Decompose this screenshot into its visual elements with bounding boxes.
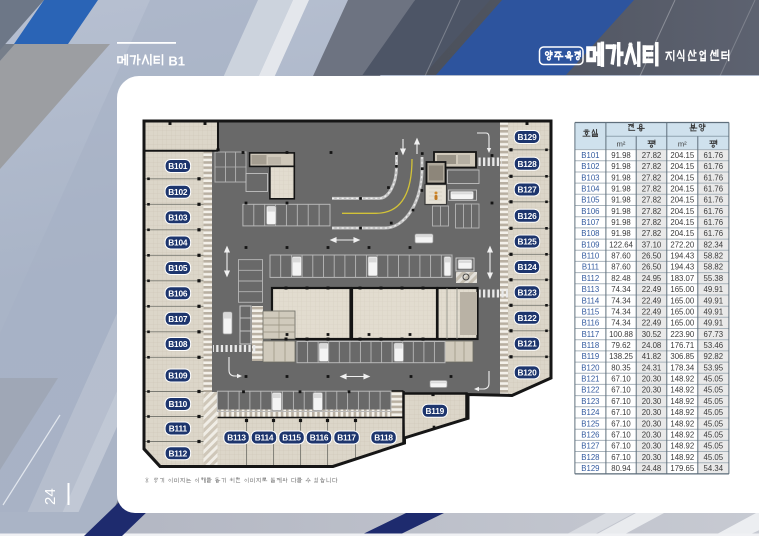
svg-text:B111: B111: [169, 424, 188, 434]
svg-text:B116: B116: [310, 433, 329, 443]
svg-text:91.98: 91.98: [611, 184, 631, 193]
svg-text:67.10: 67.10: [611, 397, 631, 406]
svg-text:26.50: 26.50: [642, 252, 662, 261]
svg-text:26.50: 26.50: [642, 263, 662, 272]
svg-text:20.30: 20.30: [642, 386, 662, 395]
svg-text:B1: B1: [168, 53, 185, 68]
svg-text:204.15: 204.15: [670, 184, 695, 193]
svg-text:B108: B108: [581, 229, 599, 238]
svg-text:m²: m²: [617, 140, 626, 149]
svg-text:148.92: 148.92: [670, 408, 694, 417]
svg-text:B128: B128: [581, 453, 599, 462]
svg-text:179.65: 179.65: [670, 464, 695, 473]
svg-text:148.92: 148.92: [670, 453, 694, 462]
svg-text:67.10: 67.10: [611, 419, 631, 428]
svg-text:80.35: 80.35: [611, 363, 631, 372]
svg-text:45.05: 45.05: [704, 386, 724, 395]
svg-text:176.71: 176.71: [670, 341, 694, 350]
svg-text:B112: B112: [169, 448, 188, 458]
svg-text:61.76: 61.76: [704, 196, 724, 205]
svg-text:B106: B106: [168, 288, 188, 298]
svg-text:27.82: 27.82: [642, 173, 662, 182]
svg-text:67.10: 67.10: [611, 453, 631, 462]
svg-text:148.92: 148.92: [670, 386, 694, 395]
svg-text:67.10: 67.10: [611, 431, 631, 440]
svg-text:49.91: 49.91: [704, 285, 724, 294]
svg-text:100.88: 100.88: [609, 330, 633, 339]
svg-text:194.43: 194.43: [670, 263, 694, 272]
svg-text:B106: B106: [581, 207, 599, 216]
svg-text:B121: B121: [517, 339, 537, 349]
svg-text:B119: B119: [582, 352, 600, 361]
svg-text:306.85: 306.85: [670, 352, 695, 361]
svg-text:148.92: 148.92: [670, 419, 694, 428]
svg-text:79.62: 79.62: [611, 341, 631, 350]
svg-text:178.34: 178.34: [670, 363, 695, 372]
svg-text:27.82: 27.82: [642, 151, 662, 160]
svg-text:204.15: 204.15: [670, 207, 695, 216]
svg-text:49.91: 49.91: [704, 319, 724, 328]
svg-text:B120: B120: [581, 363, 600, 372]
svg-text:91.98: 91.98: [611, 196, 631, 205]
svg-text:58.82: 58.82: [704, 263, 724, 272]
svg-text:B129: B129: [581, 464, 599, 473]
svg-text:B101: B101: [581, 151, 599, 160]
svg-text:87.60: 87.60: [611, 263, 631, 272]
svg-text:B118: B118: [374, 433, 393, 443]
svg-text:61.76: 61.76: [704, 207, 724, 216]
svg-text:138.25: 138.25: [609, 352, 634, 361]
svg-text:B124: B124: [581, 408, 600, 417]
svg-text:B103: B103: [168, 212, 188, 222]
svg-text:61.76: 61.76: [704, 151, 724, 160]
svg-text:82.48: 82.48: [611, 274, 631, 283]
svg-text:91.98: 91.98: [611, 173, 631, 182]
svg-text:204.15: 204.15: [670, 229, 695, 238]
svg-text:272.20: 272.20: [670, 240, 695, 249]
svg-text:54.34: 54.34: [704, 464, 724, 473]
svg-text:183.07: 183.07: [670, 274, 694, 283]
svg-text:B109: B109: [581, 240, 599, 249]
svg-text:53.46: 53.46: [704, 341, 724, 350]
svg-text:204.15: 204.15: [670, 162, 695, 171]
svg-text:53.95: 53.95: [704, 363, 724, 372]
svg-text:B110: B110: [582, 252, 600, 261]
svg-text:74.34: 74.34: [611, 296, 631, 305]
svg-text:67.73: 67.73: [704, 330, 724, 339]
svg-text:41.82: 41.82: [642, 352, 662, 361]
svg-text:B107: B107: [581, 218, 599, 227]
svg-text:B115: B115: [282, 433, 301, 443]
svg-text:165.00: 165.00: [670, 296, 695, 305]
svg-text:165.00: 165.00: [670, 319, 695, 328]
svg-text:22.49: 22.49: [642, 285, 662, 294]
svg-text:20.30: 20.30: [642, 442, 662, 451]
svg-text:B113: B113: [227, 433, 246, 443]
svg-text:B112: B112: [582, 274, 600, 283]
svg-text:165.00: 165.00: [670, 285, 695, 294]
svg-text:27.82: 27.82: [642, 218, 662, 227]
svg-text:B101: B101: [168, 161, 188, 171]
svg-text:194.43: 194.43: [670, 252, 694, 261]
svg-text:148.92: 148.92: [670, 442, 694, 451]
svg-text:45.05: 45.05: [704, 453, 724, 462]
svg-text:45.05: 45.05: [704, 419, 724, 428]
svg-text:45.05: 45.05: [704, 397, 724, 406]
svg-text:m²: m²: [678, 140, 687, 149]
svg-text:91.98: 91.98: [611, 218, 631, 227]
svg-text:B117: B117: [337, 433, 356, 443]
svg-text:61.76: 61.76: [704, 229, 724, 238]
svg-text:204.15: 204.15: [670, 151, 695, 160]
svg-text:49.91: 49.91: [704, 307, 724, 316]
svg-text:B125: B125: [581, 419, 600, 428]
svg-text:B126: B126: [517, 211, 537, 221]
svg-text:B108: B108: [168, 339, 188, 349]
svg-text:148.92: 148.92: [670, 375, 694, 384]
svg-text:20.30: 20.30: [642, 453, 662, 462]
svg-text:B109: B109: [168, 371, 188, 381]
svg-text:B111: B111: [582, 263, 599, 272]
svg-text:B105: B105: [168, 263, 188, 273]
svg-text:122.64: 122.64: [609, 240, 634, 249]
svg-text:B118: B118: [582, 341, 600, 350]
svg-text:27.82: 27.82: [642, 229, 662, 238]
svg-text:27.82: 27.82: [642, 184, 662, 193]
svg-text:82.34: 82.34: [704, 240, 724, 249]
svg-text:B113: B113: [582, 285, 600, 294]
svg-text:30.52: 30.52: [642, 330, 662, 339]
svg-text:67.10: 67.10: [611, 375, 631, 384]
svg-text:B127: B127: [581, 442, 599, 451]
svg-text:B103: B103: [581, 173, 599, 182]
svg-text:91.98: 91.98: [611, 207, 631, 216]
svg-text:27.82: 27.82: [642, 162, 662, 171]
svg-text:165.00: 165.00: [670, 307, 695, 316]
svg-text:B102: B102: [581, 162, 599, 171]
svg-text:74.34: 74.34: [611, 307, 631, 316]
svg-text:B110: B110: [169, 399, 188, 409]
svg-text:45.05: 45.05: [704, 375, 724, 384]
svg-text:37.10: 37.10: [642, 240, 662, 249]
svg-text:24: 24: [42, 488, 59, 505]
svg-text:B114: B114: [582, 296, 600, 305]
svg-text:45.05: 45.05: [704, 408, 724, 417]
svg-text:58.82: 58.82: [704, 252, 724, 261]
svg-text:B122: B122: [517, 313, 537, 323]
svg-text:61.76: 61.76: [704, 173, 724, 182]
svg-text:204.15: 204.15: [670, 218, 695, 227]
svg-text:61.76: 61.76: [704, 184, 724, 193]
svg-text:24.48: 24.48: [642, 464, 662, 473]
svg-text:204.15: 204.15: [670, 196, 695, 205]
svg-text:20.30: 20.30: [642, 419, 662, 428]
svg-text:B107: B107: [168, 314, 188, 324]
svg-text:80.94: 80.94: [611, 464, 631, 473]
svg-text:67.10: 67.10: [611, 386, 631, 395]
svg-text:20.30: 20.30: [642, 375, 662, 384]
svg-text:27.82: 27.82: [642, 196, 662, 205]
svg-text:B116: B116: [582, 319, 600, 328]
svg-text:27.82: 27.82: [642, 207, 662, 216]
svg-text:22.49: 22.49: [642, 296, 662, 305]
svg-text:B119: B119: [426, 406, 445, 416]
svg-text:B117: B117: [582, 330, 600, 339]
svg-text:B105: B105: [581, 196, 600, 205]
svg-text:87.60: 87.60: [611, 252, 631, 261]
svg-text:91.98: 91.98: [611, 151, 631, 160]
svg-text:20.30: 20.30: [642, 431, 662, 440]
svg-text:B126: B126: [581, 431, 599, 440]
svg-text:45.05: 45.05: [704, 431, 724, 440]
svg-text:148.92: 148.92: [670, 397, 694, 406]
svg-text:67.10: 67.10: [611, 408, 631, 417]
svg-text:92.82: 92.82: [704, 352, 724, 361]
svg-text:B114: B114: [255, 433, 274, 443]
svg-text:24.31: 24.31: [642, 363, 662, 372]
svg-text:B124: B124: [517, 262, 537, 272]
svg-text:91.98: 91.98: [611, 229, 631, 238]
svg-text:74.34: 74.34: [611, 319, 631, 328]
svg-text:49.91: 49.91: [704, 296, 724, 305]
svg-text:22.49: 22.49: [642, 307, 662, 316]
svg-text:B129: B129: [517, 132, 537, 142]
svg-text:B120: B120: [517, 367, 537, 377]
svg-text:20.30: 20.30: [642, 397, 662, 406]
svg-text:20.30: 20.30: [642, 408, 662, 417]
svg-text:67.10: 67.10: [611, 442, 631, 451]
svg-text:B123: B123: [581, 397, 599, 406]
svg-text:61.76: 61.76: [704, 162, 724, 171]
svg-text:B125: B125: [517, 237, 537, 247]
svg-text:204.15: 204.15: [670, 173, 695, 182]
svg-text:45.05: 45.05: [704, 442, 724, 451]
svg-text:91.98: 91.98: [611, 162, 631, 171]
svg-text:B115: B115: [582, 307, 600, 316]
svg-text:B127: B127: [517, 185, 537, 195]
svg-text:B123: B123: [517, 287, 537, 297]
svg-text:61.76: 61.76: [704, 218, 724, 227]
svg-text:B122: B122: [581, 386, 599, 395]
svg-text:223.90: 223.90: [670, 330, 695, 339]
svg-text:B102: B102: [168, 187, 188, 197]
svg-text:22.49: 22.49: [642, 319, 662, 328]
svg-text:74.34: 74.34: [611, 285, 631, 294]
svg-text:B121: B121: [581, 375, 599, 384]
svg-text:24.95: 24.95: [642, 274, 662, 283]
svg-text:24.08: 24.08: [642, 341, 662, 350]
svg-text:55.38: 55.38: [704, 274, 724, 283]
svg-text:148.92: 148.92: [670, 431, 694, 440]
svg-text:B128: B128: [517, 159, 537, 169]
svg-text:B104: B104: [168, 238, 188, 248]
svg-text:B104: B104: [581, 184, 600, 193]
